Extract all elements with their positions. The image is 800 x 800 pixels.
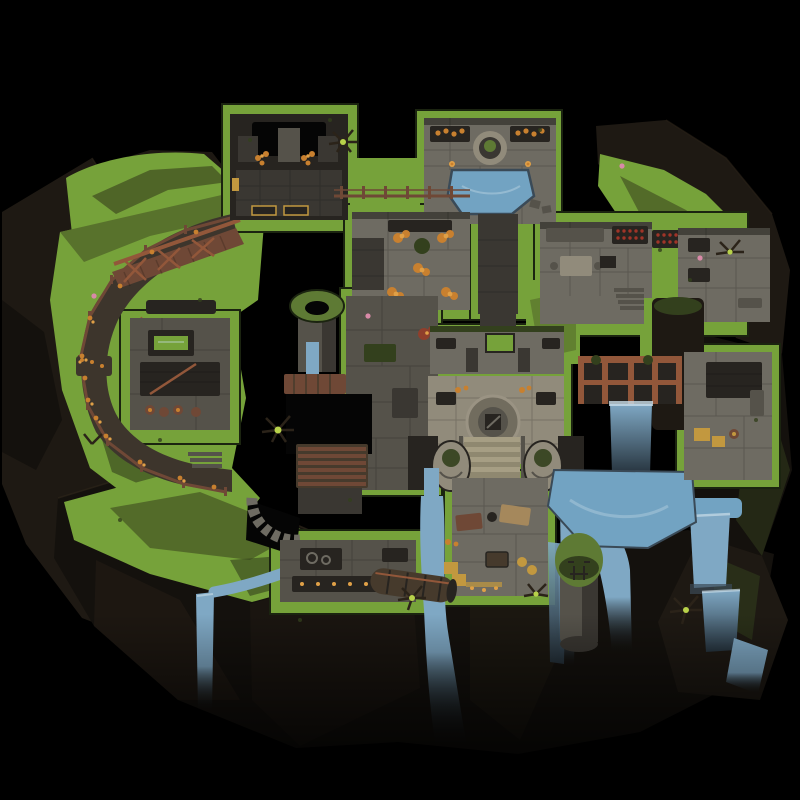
battlemap-viewport: Isometric fantasy battlemap: cliffside k… <box>0 0 800 800</box>
garden-bush <box>414 238 430 254</box>
alcove-row <box>430 326 564 374</box>
right-room-wall-shadow <box>678 228 770 235</box>
chest <box>486 552 508 567</box>
notice-board <box>486 334 514 352</box>
side-table <box>455 513 483 532</box>
bath-pool <box>448 170 534 214</box>
door-chip <box>232 178 239 191</box>
gear-table <box>300 548 342 570</box>
stone-bench <box>750 390 764 416</box>
stool <box>550 262 558 270</box>
pillar <box>518 348 530 372</box>
map-table <box>148 330 194 356</box>
battlemap-illustration: Isometric fantasy battlemap: cliffside k… <box>0 0 800 800</box>
corridor-floor <box>478 214 518 314</box>
library-workshop <box>130 300 230 430</box>
mossy-table <box>364 344 396 362</box>
tower-mouth <box>305 301 329 315</box>
bench <box>436 338 456 349</box>
shelf-top <box>146 300 216 314</box>
side-bench <box>382 548 408 562</box>
bath-pool-room <box>424 118 556 224</box>
hedge <box>430 326 564 332</box>
stair-steps <box>464 437 520 478</box>
dam-moss <box>591 355 601 365</box>
plank-bridge <box>296 444 368 488</box>
bench <box>542 338 560 349</box>
altar-pedestal <box>238 136 258 162</box>
shrine-room <box>230 114 348 220</box>
pool-room-wall-shadow <box>424 118 556 125</box>
crates-stack <box>392 388 418 418</box>
stove <box>600 256 616 268</box>
pillar <box>466 348 478 372</box>
plaza-table <box>536 392 556 405</box>
garden-planter <box>388 220 452 232</box>
garden-dark-wing <box>352 238 384 290</box>
study-room <box>444 478 548 596</box>
study-floor <box>452 478 548 596</box>
dam-moss <box>643 355 653 365</box>
altar-pedestal <box>318 136 338 162</box>
garden-wall-shadow <box>352 212 470 219</box>
bottom-vignette <box>0 614 800 800</box>
dark-corridor <box>478 214 518 330</box>
dam-crest <box>609 401 653 406</box>
landing <box>298 488 362 514</box>
storage-room <box>684 352 772 480</box>
altar-idol <box>278 128 300 162</box>
bookshelf <box>140 362 220 396</box>
fire-pit <box>487 512 497 522</box>
flower-garden-room <box>352 212 470 310</box>
terrace-steps <box>188 452 222 468</box>
plaza-table <box>436 392 456 405</box>
kitchen-counter <box>546 228 604 242</box>
timber-platform <box>284 374 346 394</box>
pool-shrine-statue <box>473 131 507 165</box>
dam-waterfall <box>610 404 652 474</box>
dark-pit <box>286 394 372 514</box>
fall-step-1 <box>690 514 730 588</box>
dome-band <box>559 556 599 580</box>
table <box>688 238 710 252</box>
bench <box>738 298 762 308</box>
kitchen-table <box>560 256 592 276</box>
pillar-moss <box>654 297 702 315</box>
